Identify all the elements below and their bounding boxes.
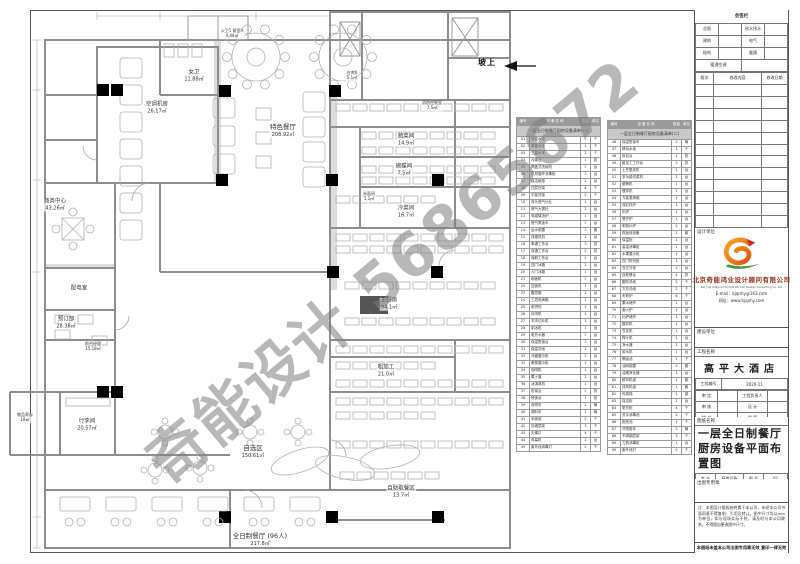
room-label-all-day-restaurant: 全日制餐厅 (96人)217.8㎡ [232,533,288,547]
room-label-vegetable-room: 蔬菜间14.9㎡ [397,134,416,147]
company-name-en: Bei Jing QiNeng HongYe Kitchen Design Co… [701,285,782,289]
invalid-note-block: 本图纸未盖本公司出图专用章无效 复印一律无效 [695,542,788,553]
room-label-luggage-room: 行李间20.57㎡ [76,419,97,432]
seal-block: 出图专用章 [695,479,788,503]
notes-text: 注：本图设计版权始终属于本公司，未经本公司书面同意不得复制、引用及转让。图中尺寸… [695,503,788,530]
room-label-self-select-area: 自选区150.61㎡ [241,445,266,459]
room-label-womens-wc: 女卫11.88㎡ [183,70,204,83]
notes-block: 注：本图设计版权始终属于本公司，未经本公司书面同意不得复制、引用及转让。图中尺寸… [695,503,788,542]
project-name: 高平大酒店 [695,357,788,378]
room-label-rough-processing: 粗加工21.0㎡ [377,365,396,378]
doors [83,146,455,508]
room-label-rice-room: 米面间5.1㎡ [362,192,376,202]
signoff-title: 会签栏 [696,10,788,23]
invalid-note-text: 本图纸未盖本公司出图专用章无效 复印一律无效 [695,542,788,551]
company-name: 北京奇能鸿业设计顾问有限公司 [693,274,791,284]
room-label-reservation: 预订部28.38㎡ [55,317,76,330]
equipment-table-2: 编号 设 备 名 称 数量 单位 一层全日制餐厅厨房设备清单(二) 46保温售饭… [607,120,692,455]
design-unit-label: 设计单位 [695,228,788,236]
slope-arrow-icon [504,61,536,71]
company-email: E-mail：bjqnhy@163.com [716,291,768,297]
room-label-public-wc: 公卫1 前室A4.44㎡ [220,29,245,39]
slope-up-label: 坡上 [478,57,496,68]
company-logo [721,236,763,272]
room-label-business-center: 商务中心43.26㎡ [43,199,67,212]
equipment-table-1: 编号 设 备 名 称 数量 单位 一层全日制餐厅厨房设备清单(一) 01双星水池… [516,117,601,452]
walls [10,12,510,548]
company-website: 网址：www.bjqnhy.com [719,298,765,304]
dimension-lines [33,12,330,548]
shafts [340,18,478,56]
drawing-name-label: 图纸名称 [695,417,788,426]
room-label-item-storage: 物品寄存18㎡ [16,413,34,423]
room-label-dishware-room: 碗碟间7.5㎡ [395,164,414,177]
design-unit-block: 设计单位 北京奇能鸿业设计顾问有限公司 Bei Jing QiNeng Hong… [695,228,788,328]
room-label-front-desk-manager: 前台经理15.18㎡ [84,342,102,352]
room-label-fire-control: 消防控制室7.5㎡ [421,101,443,111]
room-label-cold-dish-room: 冷菜间16.7㎡ [397,206,416,219]
room-label-ac-room: 空调机房26.17㎡ [145,102,169,115]
project-name-label: 工程名称 [695,348,788,357]
drawing-title: 一层全日制餐厅 厨房设备平面布置图 [695,426,788,473]
room-label-storeroom: 仓库65.1㎡ [346,71,359,81]
signoff-block: 会签栏 总图给水排水 建筑电气 结构暖通 暖通空调 [695,10,788,72]
seal-label: 出图专用章 [695,479,788,487]
room-label-special-restaurant: 特色餐厅208.92㎡ [269,124,297,138]
construction-unit-label: 建设单位 [695,328,788,336]
room-label-power-room: 配电室 [70,286,89,293]
room-label-buffet-pickup: 自助取餐区13.7㎡ [386,486,416,499]
revision-block: 版次 修改内容 修改日期 [695,72,788,228]
room-label-main-kitchen: 主厨房94.1㎡ [380,298,399,311]
construction-unit-block: 建设单位 [695,328,788,348]
